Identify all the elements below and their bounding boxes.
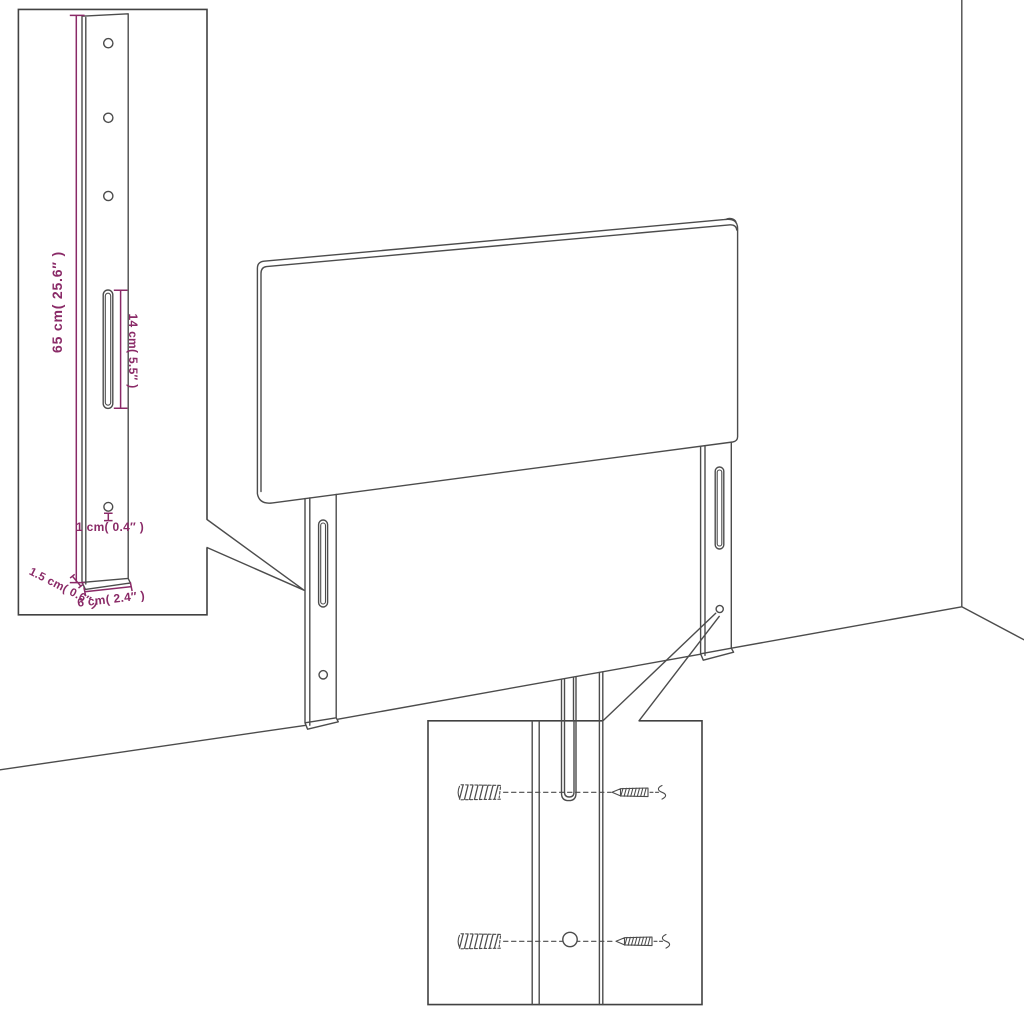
left-leg-hole <box>319 671 327 679</box>
headboard <box>257 218 737 503</box>
left-leg-outline <box>305 495 338 730</box>
right-leg-slot-inner <box>717 470 722 546</box>
callout-lines-leg-detail <box>207 520 304 591</box>
headboard-panel-outline <box>257 219 737 503</box>
dimension-height: 65 cm( 25.6″ ) <box>49 15 85 582</box>
mounting-detail-post <box>532 672 603 1005</box>
screw-hole <box>104 39 113 48</box>
leg-detail-inset: 65 cm( 25.6″ ) 14 cm( 5.5″ ) 1 cm( 0.4″ … <box>18 9 207 614</box>
left-leg-slot-inner <box>321 523 326 604</box>
dimension-hole-label: 1 cm( 0.4″ ) <box>76 520 144 534</box>
dimension-slot-line <box>114 290 128 408</box>
bottom-screw-hole <box>104 502 113 511</box>
room-corner <box>0 0 1024 770</box>
left-leg-slot <box>319 520 328 607</box>
screw-hole <box>104 113 113 122</box>
screw-hole <box>104 191 113 200</box>
right-leg-hole <box>716 605 723 612</box>
adjustment-slot-inner <box>105 293 110 405</box>
callout-lines-mounting-detail <box>603 613 719 721</box>
dimension-slot-length: 14 cm( 5.5″ ) <box>114 290 140 408</box>
wall-plug-icon <box>458 934 500 949</box>
mounting-detail-inset <box>428 672 702 1005</box>
diagram-canvas: 65 cm( 25.6″ ) 14 cm( 5.5″ ) 1 cm( 0.4″ … <box>0 0 1024 1024</box>
dimension-slot-label: 14 cm( 5.5″ ) <box>126 313 140 388</box>
right-leg <box>701 443 734 661</box>
screw-icon <box>616 935 670 949</box>
adjustment-slot <box>103 290 113 408</box>
floor-line-left <box>0 607 962 770</box>
wall-plug-icon <box>458 785 500 800</box>
mounting-detail-slot <box>562 721 577 801</box>
product-diagram: 65 cm( 25.6″ ) 14 cm( 5.5″ ) 1 cm( 0.4″ … <box>0 0 1024 1024</box>
mounting-detail-hole <box>563 932 577 946</box>
left-leg <box>305 495 338 730</box>
screw-icon <box>612 786 666 800</box>
dimension-height-label: 65 cm( 25.6″ ) <box>49 251 65 353</box>
right-leg-slot <box>715 467 724 549</box>
floor-line-right <box>962 607 1024 640</box>
